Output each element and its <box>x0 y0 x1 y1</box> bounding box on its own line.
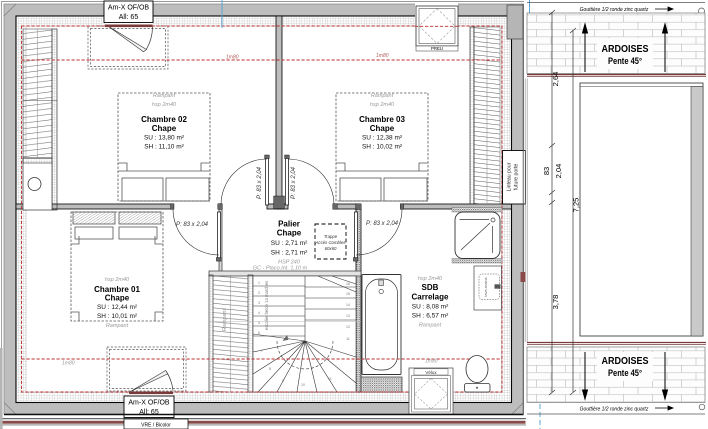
svg-text:SU : 12,44 m²: SU : 12,44 m² <box>97 304 138 311</box>
svg-text:hsp 2m40: hsp 2m40 <box>105 277 130 283</box>
svg-text:Rampant: Rampant <box>371 93 394 99</box>
svg-text:PREU: PREU <box>431 46 443 51</box>
svg-text:10: 10 <box>301 383 305 387</box>
svg-text:8: 8 <box>269 367 271 371</box>
svg-text:ARDOISES: ARDOISES <box>602 43 649 55</box>
svg-text:1m80: 1m80 <box>425 359 438 365</box>
svg-text:Gouttière 1/2 ronde zinc quart: Gouttière 1/2 ronde zinc quartz <box>580 407 649 413</box>
svg-text:Am-X OF/OB: Am-X OF/OB <box>108 5 150 12</box>
svg-text:7: 7 <box>261 349 263 353</box>
svg-text:GC - Placo.Int. 1,10 m: GC - Placo.Int. 1,10 m <box>253 266 308 272</box>
svg-text:83: 83 <box>542 167 551 175</box>
svg-text:P: 83 x 2,04: P: 83 x 2,04 <box>291 166 297 199</box>
svg-text:60x60: 60x60 <box>325 246 337 251</box>
svg-text:Chape: Chape <box>370 124 395 133</box>
svg-text:SH : 11,10 m²: SH : 11,10 m² <box>144 144 184 151</box>
svg-text:SH : 10,02 m²: SH : 10,02 m² <box>362 144 403 151</box>
svg-text:Pente 45°: Pente 45° <box>608 368 642 379</box>
svg-text:Palier: Palier <box>278 220 300 229</box>
svg-text:2,04: 2,04 <box>554 164 563 179</box>
svg-text:hsp 2m40: hsp 2m40 <box>152 102 177 108</box>
svg-text:Rampant: Rampant <box>106 323 129 329</box>
svg-text:1m80: 1m80 <box>226 55 239 61</box>
svg-text:Am-X OF/OB: Am-X OF/OB <box>128 400 170 407</box>
svg-text:16: 16 <box>346 282 350 286</box>
svg-text:6: 6 <box>258 331 260 335</box>
svg-text:Chambre 02: Chambre 02 <box>141 115 187 124</box>
svg-text:1: 1 <box>258 281 260 285</box>
svg-text:14: 14 <box>346 303 350 307</box>
svg-text:Chape: Chape <box>277 229 302 238</box>
svg-text:Linteau pour: Linteau pour <box>507 162 513 191</box>
svg-text:4: 4 <box>258 311 260 315</box>
svg-text:9: 9 <box>282 379 284 383</box>
svg-text:Gouttière 1/2 ronde zinc quart: Gouttière 1/2 ronde zinc quartz <box>580 7 649 13</box>
svg-text:1m80: 1m80 <box>62 361 75 367</box>
svg-text:SU : 2,71 m²: SU : 2,71 m² <box>271 240 308 247</box>
svg-text:escalier beton 14 marches: escalier beton 14 marches <box>264 281 269 330</box>
svg-text:Rampant: Rampant <box>419 323 442 329</box>
svg-text:SH : 10,01 m²: SH : 10,01 m² <box>97 313 138 320</box>
svg-text:P: 83 x 2,04: P: 83 x 2,04 <box>176 222 209 228</box>
svg-text:P: 83 x 2,04: P: 83 x 2,04 <box>257 166 263 199</box>
svg-text:VRE / Bicolor: VRE / Bicolor <box>141 423 171 429</box>
svg-text:3: 3 <box>258 301 260 305</box>
svg-text:lave-mains: lave-mains <box>483 277 488 296</box>
svg-text:future porte: future porte <box>514 164 520 191</box>
svg-text:11: 11 <box>346 337 350 341</box>
svg-text:SH : 2,71 m²: SH : 2,71 m² <box>271 250 308 257</box>
svg-text:Rampant: Rampant <box>222 308 228 331</box>
svg-text:SU : 8,08 m²: SU : 8,08 m² <box>412 304 449 311</box>
svg-text:Chape: Chape <box>105 294 130 303</box>
svg-text:ARDOISES: ARDOISES <box>602 355 649 367</box>
svg-text:Vélux: Vélux <box>425 370 437 375</box>
svg-text:Accès Combles: Accès Combles <box>315 240 347 245</box>
svg-text:2: 2 <box>258 291 260 295</box>
svg-text:7,25: 7,25 <box>572 198 581 213</box>
svg-text:2,64: 2,64 <box>551 72 560 87</box>
svg-text:12: 12 <box>346 325 350 329</box>
svg-text:SU : 12,38 m²: SU : 12,38 m² <box>362 135 403 142</box>
svg-text:Chape: Chape <box>152 124 177 133</box>
svg-text:hsp 2m40: hsp 2m40 <box>370 102 395 108</box>
svg-text:SDB: SDB <box>422 283 439 292</box>
svg-text:SH : 6,57 m²: SH : 6,57 m² <box>412 313 449 320</box>
svg-text:P: 83 x 2,04: P: 83 x 2,04 <box>366 221 399 227</box>
svg-text:All: 65: All: 65 <box>119 14 139 21</box>
svg-text:15: 15 <box>346 292 350 296</box>
svg-text:3,78: 3,78 <box>551 295 560 310</box>
svg-text:Chambre 03: Chambre 03 <box>359 115 405 124</box>
svg-text:Carrelage: Carrelage <box>412 293 449 302</box>
svg-text:13: 13 <box>346 314 350 318</box>
svg-text:Rampant: Rampant <box>153 93 176 99</box>
svg-text:1m80: 1m80 <box>376 53 389 59</box>
svg-text:hsp 2m40: hsp 2m40 <box>418 276 443 282</box>
svg-text:11: 11 <box>328 377 332 381</box>
svg-text:Trappe: Trappe <box>324 234 338 239</box>
svg-text:Pente 45°: Pente 45° <box>608 56 642 67</box>
svg-text:SU : 13,80 m²: SU : 13,80 m² <box>144 135 185 142</box>
